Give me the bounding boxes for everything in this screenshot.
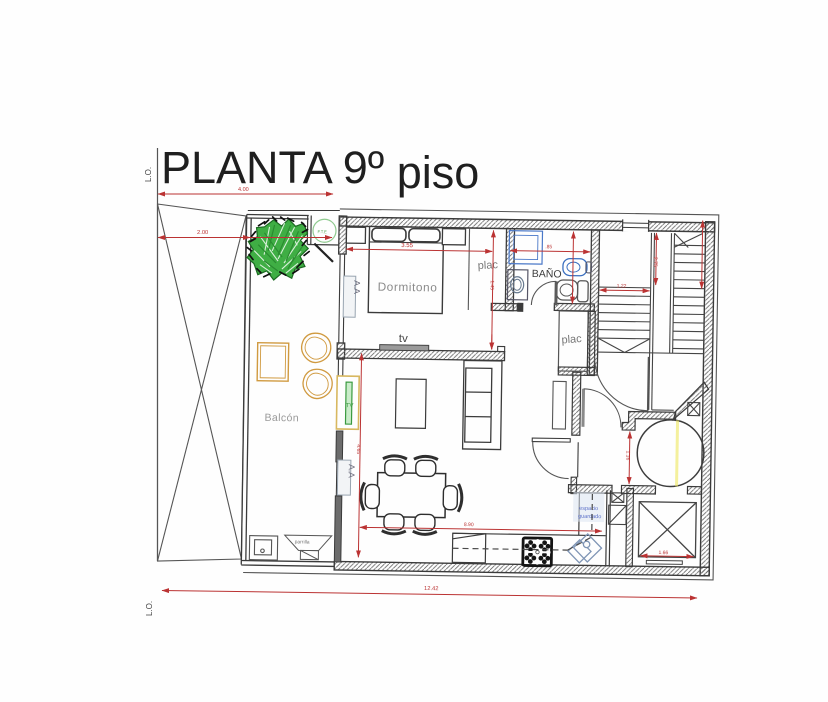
svg-text:L.O.: L.O. xyxy=(144,167,153,182)
svg-text:BAÑO: BAÑO xyxy=(532,267,562,280)
svg-text:1.66: 1.66 xyxy=(658,550,668,556)
svg-text:.85: .85 xyxy=(545,244,552,250)
svg-text:espacio: espacio xyxy=(579,506,598,512)
svg-text:4.65: 4.65 xyxy=(355,444,361,454)
svg-text:plac: plac xyxy=(477,259,498,272)
svg-text:guardado: guardado xyxy=(578,514,601,520)
svg-text:PLANTA 9º piso: PLANTA 9º piso xyxy=(161,142,479,198)
svg-text:1.22: 1.22 xyxy=(617,283,627,289)
svg-text:1.45: 1.45 xyxy=(489,280,495,290)
svg-text:A.A: A.A xyxy=(352,280,362,294)
svg-text:2.75: 2.75 xyxy=(652,257,658,267)
svg-text:TV: TV xyxy=(346,403,354,409)
svg-text:12.42: 12.42 xyxy=(424,586,439,592)
svg-text:Dormitono: Dormitono xyxy=(378,280,438,295)
svg-text:L.O.: L.O. xyxy=(145,601,154,616)
svg-text:parrilla: parrilla xyxy=(295,539,310,545)
svg-text:tv: tv xyxy=(399,333,408,345)
svg-text:4.00: 4.00 xyxy=(238,187,249,193)
svg-text:1.16: 1.16 xyxy=(624,450,630,460)
svg-text:3.55: 3.55 xyxy=(401,243,413,249)
svg-text:plac: plac xyxy=(561,333,582,346)
svg-text:2.00: 2.00 xyxy=(197,230,208,236)
svg-text:F.T.E: F.T.E xyxy=(317,229,327,234)
svg-text:Balcón: Balcón xyxy=(264,412,299,425)
svg-text:A.A: A.A xyxy=(347,464,357,478)
svg-text:8.90: 8.90 xyxy=(464,522,474,528)
